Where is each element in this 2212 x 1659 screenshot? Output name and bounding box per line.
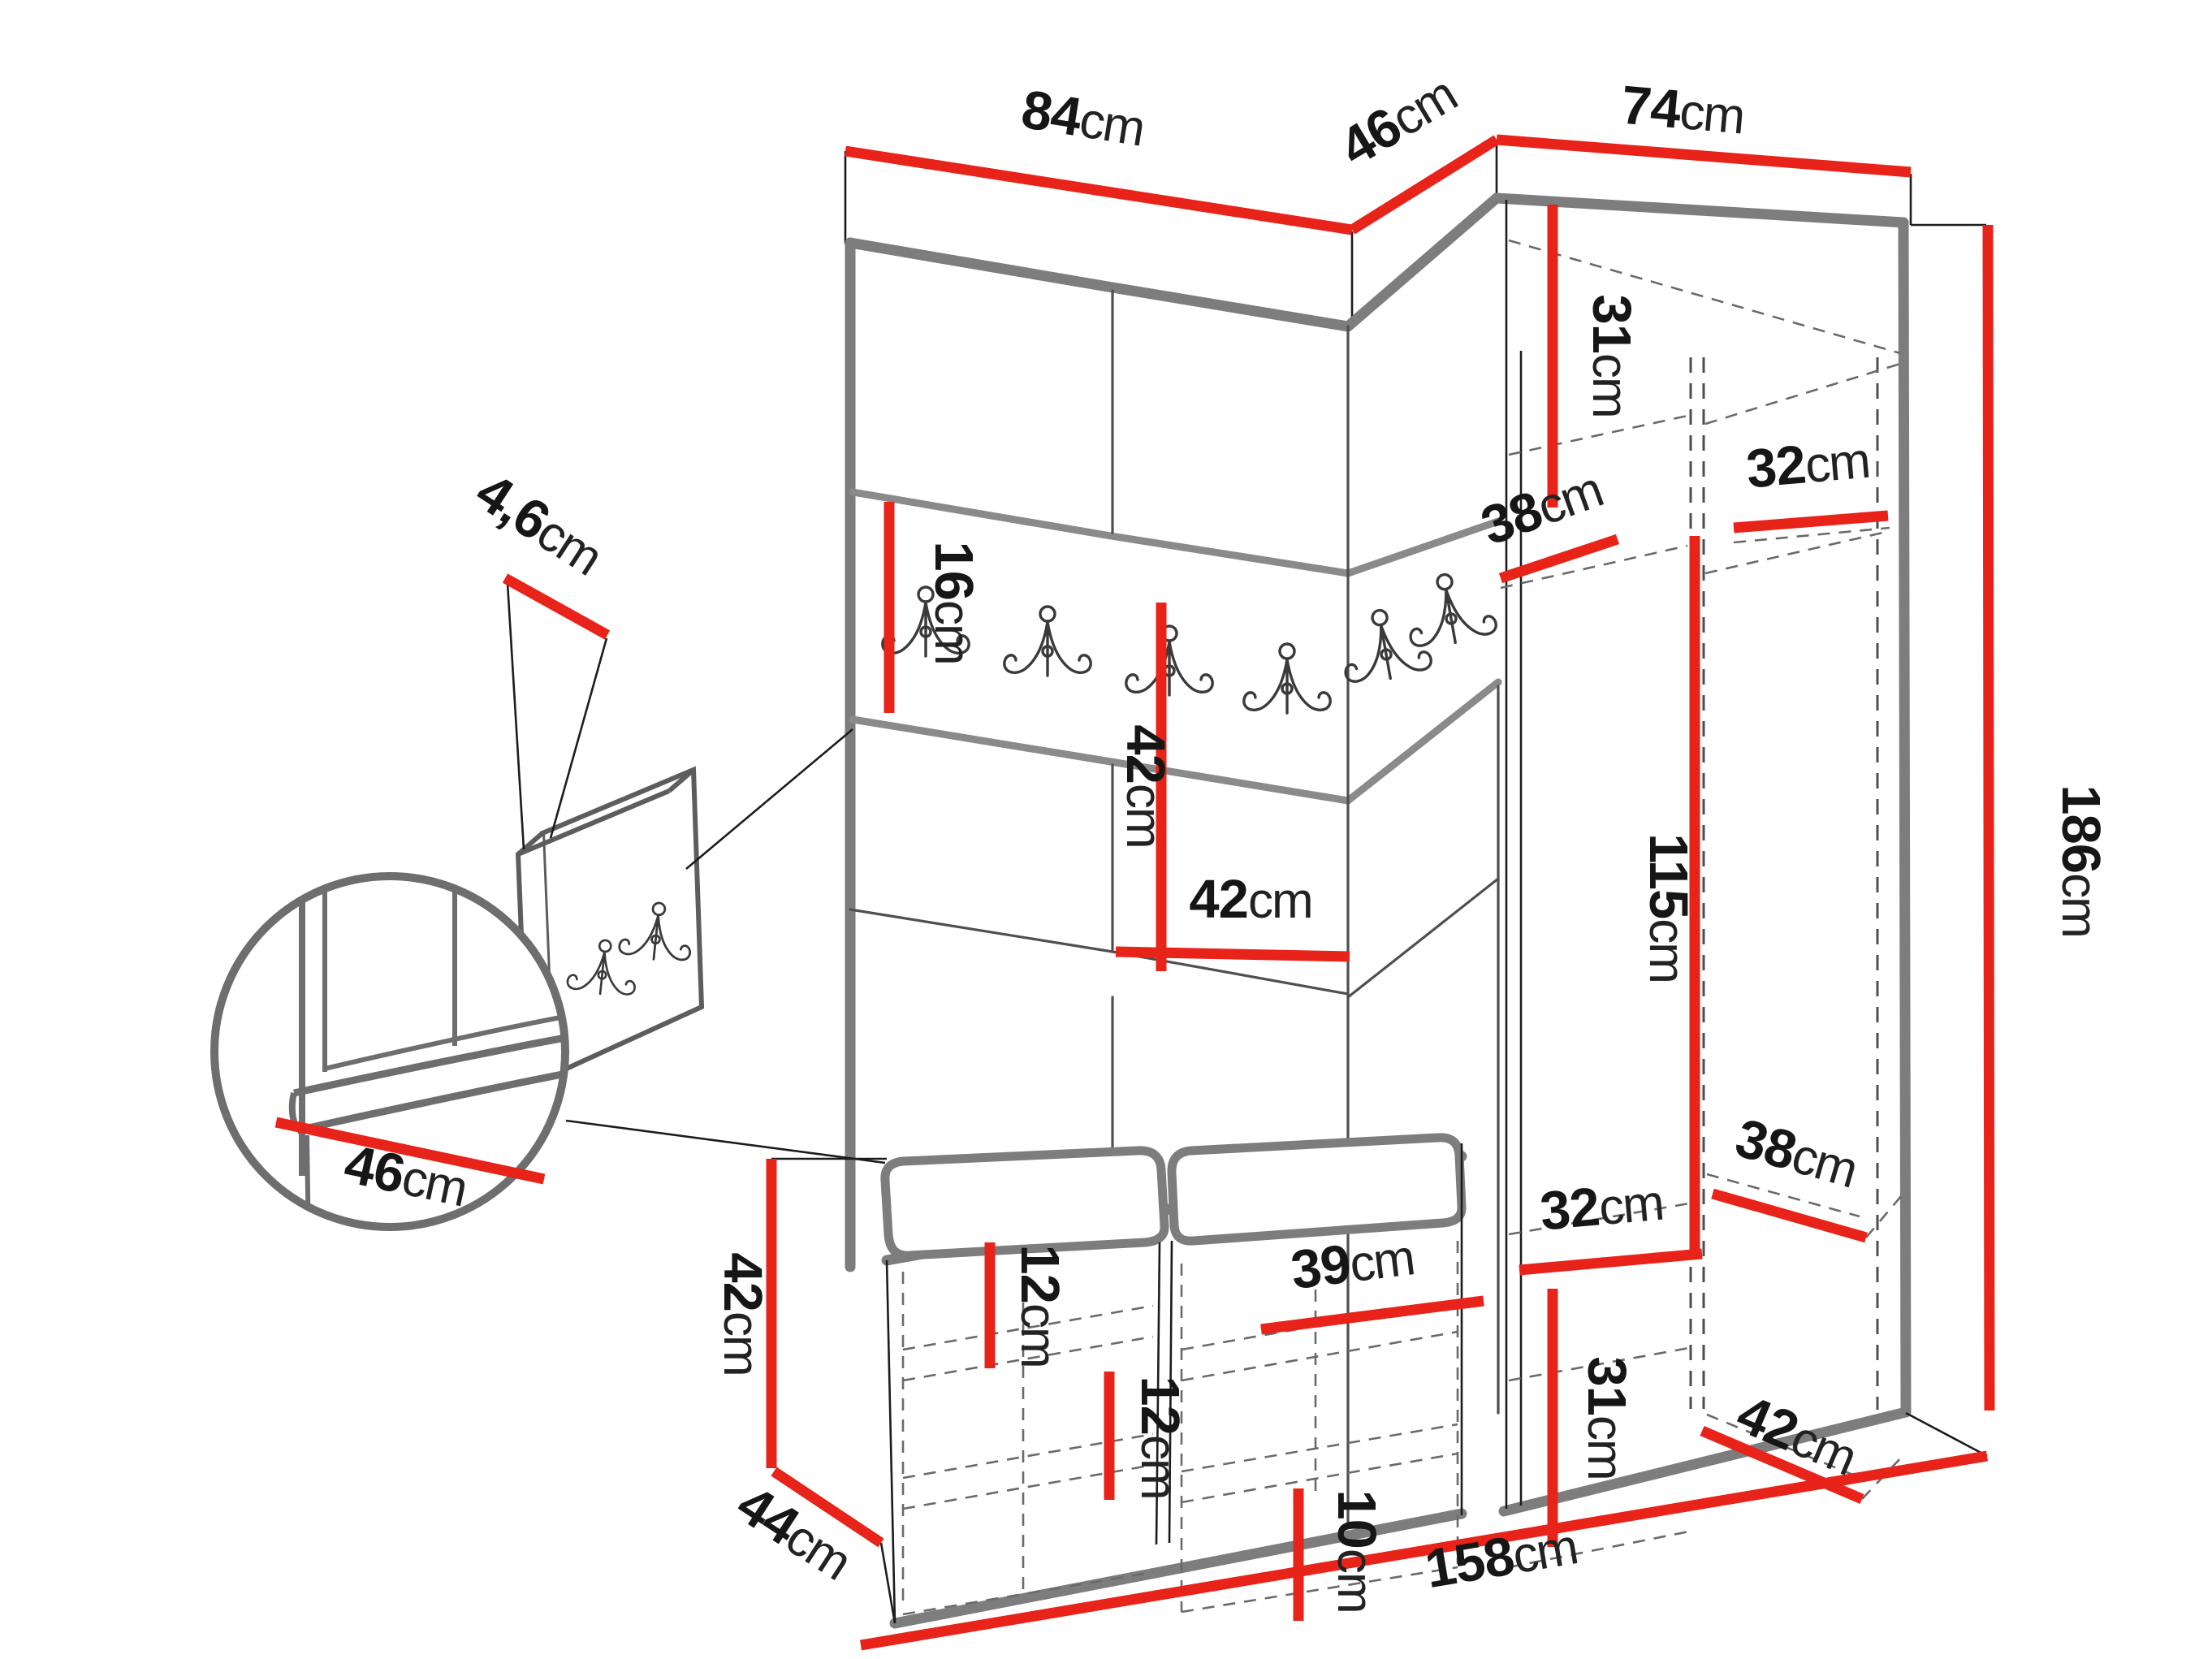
furniture-dimension-drawing: 84cm 46cm 74cm 186cm 16cm 42cm 42cm 4,6c… [0, 0, 2212, 1659]
label-115cm: 115cm [1638, 833, 1699, 983]
label-42cm-vertical: 42cm [1115, 724, 1176, 847]
bench-cushion-right [1172, 1138, 1462, 1241]
label-12cm-center: 12cm [1130, 1376, 1190, 1498]
bench-cushion-left [885, 1151, 1164, 1255]
label-31cm-bottom: 31cm [1576, 1356, 1637, 1479]
label-31cm-top: 31cm [1581, 294, 1642, 417]
coat-hook-icon [1004, 607, 1091, 676]
dim-line-186 [1988, 225, 1990, 1411]
shelf-dashed-edge [1866, 1195, 1902, 1238]
dim-line-32-bottom [1519, 1254, 1702, 1270]
label-74cm: 74cm [1618, 75, 1746, 146]
bench-left-front-edge [887, 1260, 895, 1623]
label-4-6cm: 4,6cm [465, 461, 613, 587]
shelf-dashed-edge [1509, 416, 1687, 455]
shelf-dashed-edge [903, 1465, 1153, 1509]
dim-line-39 [1261, 1301, 1484, 1329]
bench-front-edge [307, 1135, 309, 1251]
shelf-dashed-edge [1182, 1454, 1458, 1502]
dim-line-42-horizontal [1116, 952, 1350, 957]
dim-line-4-6 [505, 578, 607, 635]
dim-line-84 [845, 151, 1352, 230]
label-38cm-top: 38cm [1473, 458, 1609, 557]
top-back-dashed-edge [1509, 240, 1900, 353]
shelf-dashed-edge [903, 1572, 1153, 1614]
floor-extension-line [1906, 1413, 1987, 1456]
shelf-dashed-edge [1705, 364, 1900, 424]
dim-line-32-top [1734, 516, 1888, 528]
label-32cm-bottom: 32cm [1537, 1171, 1665, 1242]
coat-hook-icon [1244, 644, 1330, 713]
hook-rail-corner-bottom-edge [1348, 682, 1498, 801]
extension-line [508, 583, 524, 849]
wardrobe-interior [1501, 200, 1903, 1567]
coat-hook-icon [1401, 568, 1498, 650]
dim-line-74 [1497, 140, 1911, 172]
hook-rail-corner-top-edge [1348, 521, 1498, 573]
label-16cm: 16cm [923, 541, 984, 663]
label-12cm-left: 12cm [1009, 1244, 1070, 1367]
wardrobe-right-edge [1903, 222, 1906, 1412]
panel-wall-top-edge [850, 243, 1348, 326]
label-46cm: 46cm [1329, 63, 1466, 179]
label-84cm: 84cm [1017, 79, 1148, 158]
dim-line-38-bottom [1713, 1194, 1866, 1238]
shelf-dashed-edge [1182, 1424, 1458, 1471]
label-158cm: 158cm [1421, 1514, 1581, 1600]
diagram-canvas: 84cm 46cm 74cm 186cm 16cm 42cm 42cm 4,6c… [0, 0, 2212, 1659]
leader-line [686, 729, 853, 869]
hook-rail-bottom-edge [853, 719, 1348, 801]
coat-hook-icon [1126, 626, 1212, 695]
shelf-dashed-edge [1182, 1332, 1458, 1380]
label-42cm-bench: 42cm [712, 1252, 773, 1375]
label-32cm-top: 32cm [1743, 429, 1871, 500]
label-186cm: 186cm [2050, 784, 2111, 936]
label-42cm-horizontal: 42cm [1189, 869, 1311, 930]
corner-panel-seam [1348, 879, 1498, 997]
leader-line [566, 1121, 885, 1163]
label-10cm: 10cm [1326, 1489, 1387, 1612]
